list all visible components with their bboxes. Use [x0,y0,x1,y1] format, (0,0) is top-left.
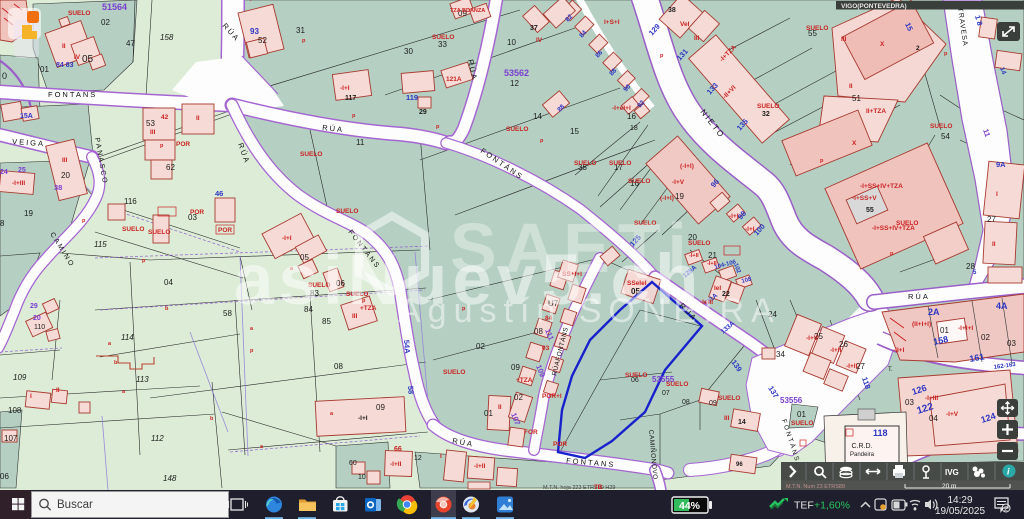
svg-text:30: 30 [404,47,413,56]
svg-text:-I+II: -I+II [390,461,402,468]
svg-text:44%: 44% [679,500,701,512]
svg-text:II: II [849,83,853,90]
svg-text:SUELO: SUELO [336,208,358,215]
svg-text:-I+III: -I+III [12,180,25,187]
svg-text:148: 148 [163,474,177,483]
svg-text:FOR: FOR [524,429,538,436]
svg-text:55: 55 [866,207,874,214]
svg-text:52: 52 [258,36,267,45]
svg-text:01: 01 [40,65,49,74]
svg-text:4A: 4A [996,301,1008,311]
svg-text:-I+I: -I+I [745,226,755,233]
svg-text:38: 38 [54,183,62,192]
svg-text:I: I [996,191,998,198]
svg-text:RÚA: RÚA [908,292,930,301]
svg-text:33: 33 [438,40,447,49]
svg-text:FONTANS: FONTANS [48,90,97,99]
svg-text:85: 85 [322,317,331,326]
svg-text:IeI: IeI [714,285,721,292]
svg-text:SS+I+I: SS+I+I [562,271,582,278]
svg-text:U7: U7 [548,299,559,308]
svg-text:46: 46 [215,189,223,198]
svg-text:22: 22 [722,291,730,298]
svg-text:108: 108 [8,406,22,415]
svg-text:113: 113 [136,375,149,384]
svg-text:83: 83 [310,289,319,298]
svg-text:SUELO: SUELO [148,229,170,236]
svg-text:SUELO: SUELO [666,381,688,388]
svg-text:07: 07 [662,390,670,397]
svg-text:VIGO(PONTEVEDRA): VIGO(PONTEVEDRA) [841,3,907,10]
svg-text:-I+V: -I+V [672,179,685,186]
svg-text:20 m: 20 m [942,483,956,490]
svg-text:14: 14 [738,419,746,426]
svg-text:SUELO: SUELO [791,420,813,427]
svg-text:27: 27 [856,362,865,371]
svg-text:93: 93 [250,27,259,36]
svg-text:01: 01 [797,410,806,419]
svg-text:II+TZA: II+TZA [866,108,886,115]
svg-text:-I+I: -I+I [340,85,350,92]
svg-text:-I+I: -I+I [729,213,739,220]
svg-text:SUELO: SUELO [574,160,596,167]
svg-text:14: 14 [533,112,542,121]
svg-text:-I+II: -I+II [707,261,717,267]
svg-text:53: 53 [146,119,155,128]
svg-text:24: 24 [768,310,777,319]
svg-text:05: 05 [300,253,309,262]
svg-text:-I+SS+IV+TZA: -I+SS+IV+TZA [860,183,903,190]
svg-text:SUELO: SUELO [346,291,368,298]
svg-text:54A: 54A [402,340,412,355]
svg-text:C.R.D.: C.R.D. [852,443,873,450]
svg-text:112: 112 [151,434,164,443]
svg-text:SUELO: SUELO [443,369,465,376]
svg-text:29: 29 [419,109,427,116]
svg-text:-II+I: -II+I [893,347,905,354]
svg-text:02: 02 [514,393,523,402]
svg-text:SUELO: SUELO [625,372,647,379]
svg-text:53556: 53556 [780,396,803,405]
svg-text:-I+I: -I+I [358,415,368,422]
svg-text:60: 60 [349,460,357,467]
svg-text:VeI: VeI [680,21,690,28]
svg-text:32: 32 [762,111,770,118]
svg-text:POR+I: POR+I [542,393,562,400]
svg-text:09: 09 [376,403,385,412]
svg-text:37: 37 [530,25,538,32]
svg-text:SUELO: SUELO [634,220,656,227]
svg-text:06: 06 [336,279,345,288]
svg-text:SUELO: SUELO [718,395,740,402]
svg-text:+TZA: +TZA [516,377,533,384]
svg-text:19: 19 [675,192,684,201]
svg-text:II: II [498,404,502,411]
svg-text:-I+II: -I+II [689,253,699,259]
svg-text:-I+II: -I+II [846,363,858,370]
svg-text:I+S+I: I+S+I [604,19,620,26]
svg-text:03: 03 [905,398,914,407]
svg-text:34: 34 [776,350,785,359]
svg-text:08: 08 [534,327,543,336]
svg-text:04: 04 [929,414,938,423]
svg-text:SUELO: SUELO [806,25,828,32]
svg-text:06: 06 [0,472,9,481]
svg-text:16: 16 [627,112,636,121]
svg-text:2A: 2A [928,307,940,317]
svg-text:II: II [56,387,60,394]
svg-text:SUELO: SUELO [122,226,144,233]
svg-text:TEF: TEF [794,500,814,512]
svg-text:IV: IV [74,54,81,61]
svg-text:(-I+I): (-I+I) [660,195,674,202]
svg-text:SUELO: SUELO [68,10,90,17]
svg-text:29: 29 [30,303,38,310]
svg-text:II: II [992,241,996,248]
svg-text:116: 116 [124,197,137,206]
svg-text:02: 02 [476,342,485,351]
svg-text:109: 109 [13,373,27,382]
svg-text:110: 110 [34,324,45,331]
svg-text:III: III [724,415,730,422]
svg-text:-I+II: -I+II [830,347,842,354]
svg-text:9A: 9A [996,160,1006,169]
svg-text:SUELO: SUELO [506,126,528,133]
svg-text:III: III [62,157,68,164]
svg-text:42: 42 [161,114,169,121]
svg-text:I: I [30,393,32,400]
svg-text:2: 2 [1004,506,1008,513]
svg-text:III: III [841,36,847,43]
svg-text:47: 47 [126,39,135,48]
svg-text:02: 02 [981,333,990,342]
svg-text:58: 58 [406,386,416,395]
svg-text:SUELO: SUELO [930,123,952,130]
svg-text:+1,60%: +1,60% [814,500,850,512]
svg-text:+TZA: +TZA [360,305,377,312]
svg-text:114: 114 [121,333,134,342]
svg-text:18: 18 [630,125,638,132]
svg-text:84: 84 [304,305,313,314]
svg-text:-I+V: -I+V [806,335,819,342]
svg-text:04: 04 [164,278,173,287]
svg-text:15: 15 [570,127,579,136]
svg-text:-I+SS+V: -I+SS+V [852,195,877,202]
svg-text:II: II [196,115,200,122]
svg-text:09: 09 [709,400,717,407]
svg-text:-IeIII: -IeIII [700,299,713,306]
svg-text:III: III [150,129,156,136]
svg-text:05: 05 [631,287,640,296]
svg-text:I: I [440,453,442,460]
svg-text:121A: 121A [446,76,462,83]
svg-text:SUELO: SUELO [688,240,710,247]
svg-text:POR: POR [176,141,190,148]
svg-text:53562: 53562 [504,68,529,78]
svg-text:SUELO: SUELO [300,151,322,158]
svg-text:Buscar: Buscar [57,499,93,511]
svg-text:02: 02 [101,18,110,27]
svg-text:SUELO: SUELO [432,34,454,41]
svg-text:III: III [352,313,358,320]
svg-text:09: 09 [511,363,520,372]
svg-text:TZA BDANZA: TZA BDANZA [450,8,485,14]
svg-text:66: 66 [394,446,402,453]
svg-text:84 83: 84 83 [56,62,74,69]
svg-text:SUELO: SUELO [757,103,779,110]
svg-text:(-I+I): (-I+I) [680,163,694,170]
svg-text:54: 54 [941,132,950,141]
svg-text:117: 117 [345,95,356,102]
svg-text:158: 158 [160,33,174,42]
svg-text:POR: POR [190,209,204,216]
svg-text:08: 08 [334,362,343,371]
svg-text:15A: 15A [20,113,33,120]
svg-text:58: 58 [223,309,232,318]
svg-text:Pandeira: Pandeira [850,452,875,458]
svg-text:27: 27 [987,215,996,224]
svg-text:119: 119 [406,93,418,102]
svg-text:-I+V: -I+V [946,411,959,418]
svg-text:-I+eI+I: -I+eI+I [612,105,631,112]
svg-text:-I+I: -I+I [282,235,292,242]
svg-text:III: III [694,35,700,42]
svg-text:24: 24 [0,169,8,176]
svg-text:-I+III: -I+III [925,395,938,402]
svg-text:12: 12 [414,455,422,462]
svg-text:POR: POR [553,441,567,448]
svg-text:20: 20 [33,315,41,322]
svg-text:03: 03 [1007,339,1016,348]
svg-text:10: 10 [507,38,516,47]
svg-text:19: 19 [24,209,33,218]
svg-text:0: 0 [2,71,7,81]
svg-text:84: 84 [545,315,553,322]
svg-text:118: 118 [873,428,888,438]
svg-text:SUELO: SUELO [628,178,650,185]
svg-text:03: 03 [542,345,550,352]
svg-text:12: 12 [510,79,519,88]
svg-text:X: X [852,140,857,147]
svg-text:SUELO: SUELO [308,282,330,289]
svg-text:38: 38 [668,7,676,14]
svg-text:96: 96 [736,462,743,468]
svg-text:115: 115 [94,240,107,249]
svg-text:01: 01 [484,409,493,418]
svg-text:25: 25 [18,167,26,174]
svg-text:-I+I+I: -I+I+I [958,325,973,332]
svg-text:51: 51 [852,94,861,103]
svg-text:IVG: IVG [945,468,959,477]
svg-text:51564: 51564 [102,2,127,12]
svg-text:05: 05 [82,54,94,65]
svg-text:62: 62 [166,163,175,172]
svg-text:08: 08 [682,399,690,406]
svg-text:21: 21 [708,251,717,260]
svg-text:II: II [62,43,66,50]
svg-text:SSeIeI: SSeIeI [627,280,647,287]
svg-text:8: 8 [0,219,5,228]
svg-text:10: 10 [358,474,366,481]
svg-text:IV: IV [536,37,543,44]
svg-text:14:29: 14:29 [947,495,972,506]
svg-text:T.: T. [888,367,893,373]
svg-text:-I+SS+IV+TZA: -I+SS+IV+TZA [872,225,915,232]
svg-text:20: 20 [61,171,70,180]
svg-text:19/05/2025: 19/05/2025 [935,506,985,517]
svg-text:X: X [880,41,885,48]
svg-text:POR: POR [218,227,232,234]
svg-text:(II+I+I): (II+I+I) [912,321,931,328]
svg-text:SUELO: SUELO [609,160,631,167]
svg-text:2: 2 [916,45,920,52]
svg-text:107: 107 [4,434,18,443]
svg-text:-I+II: -I+II [474,463,486,470]
svg-text:31: 31 [296,26,305,35]
svg-text:11: 11 [356,138,365,147]
